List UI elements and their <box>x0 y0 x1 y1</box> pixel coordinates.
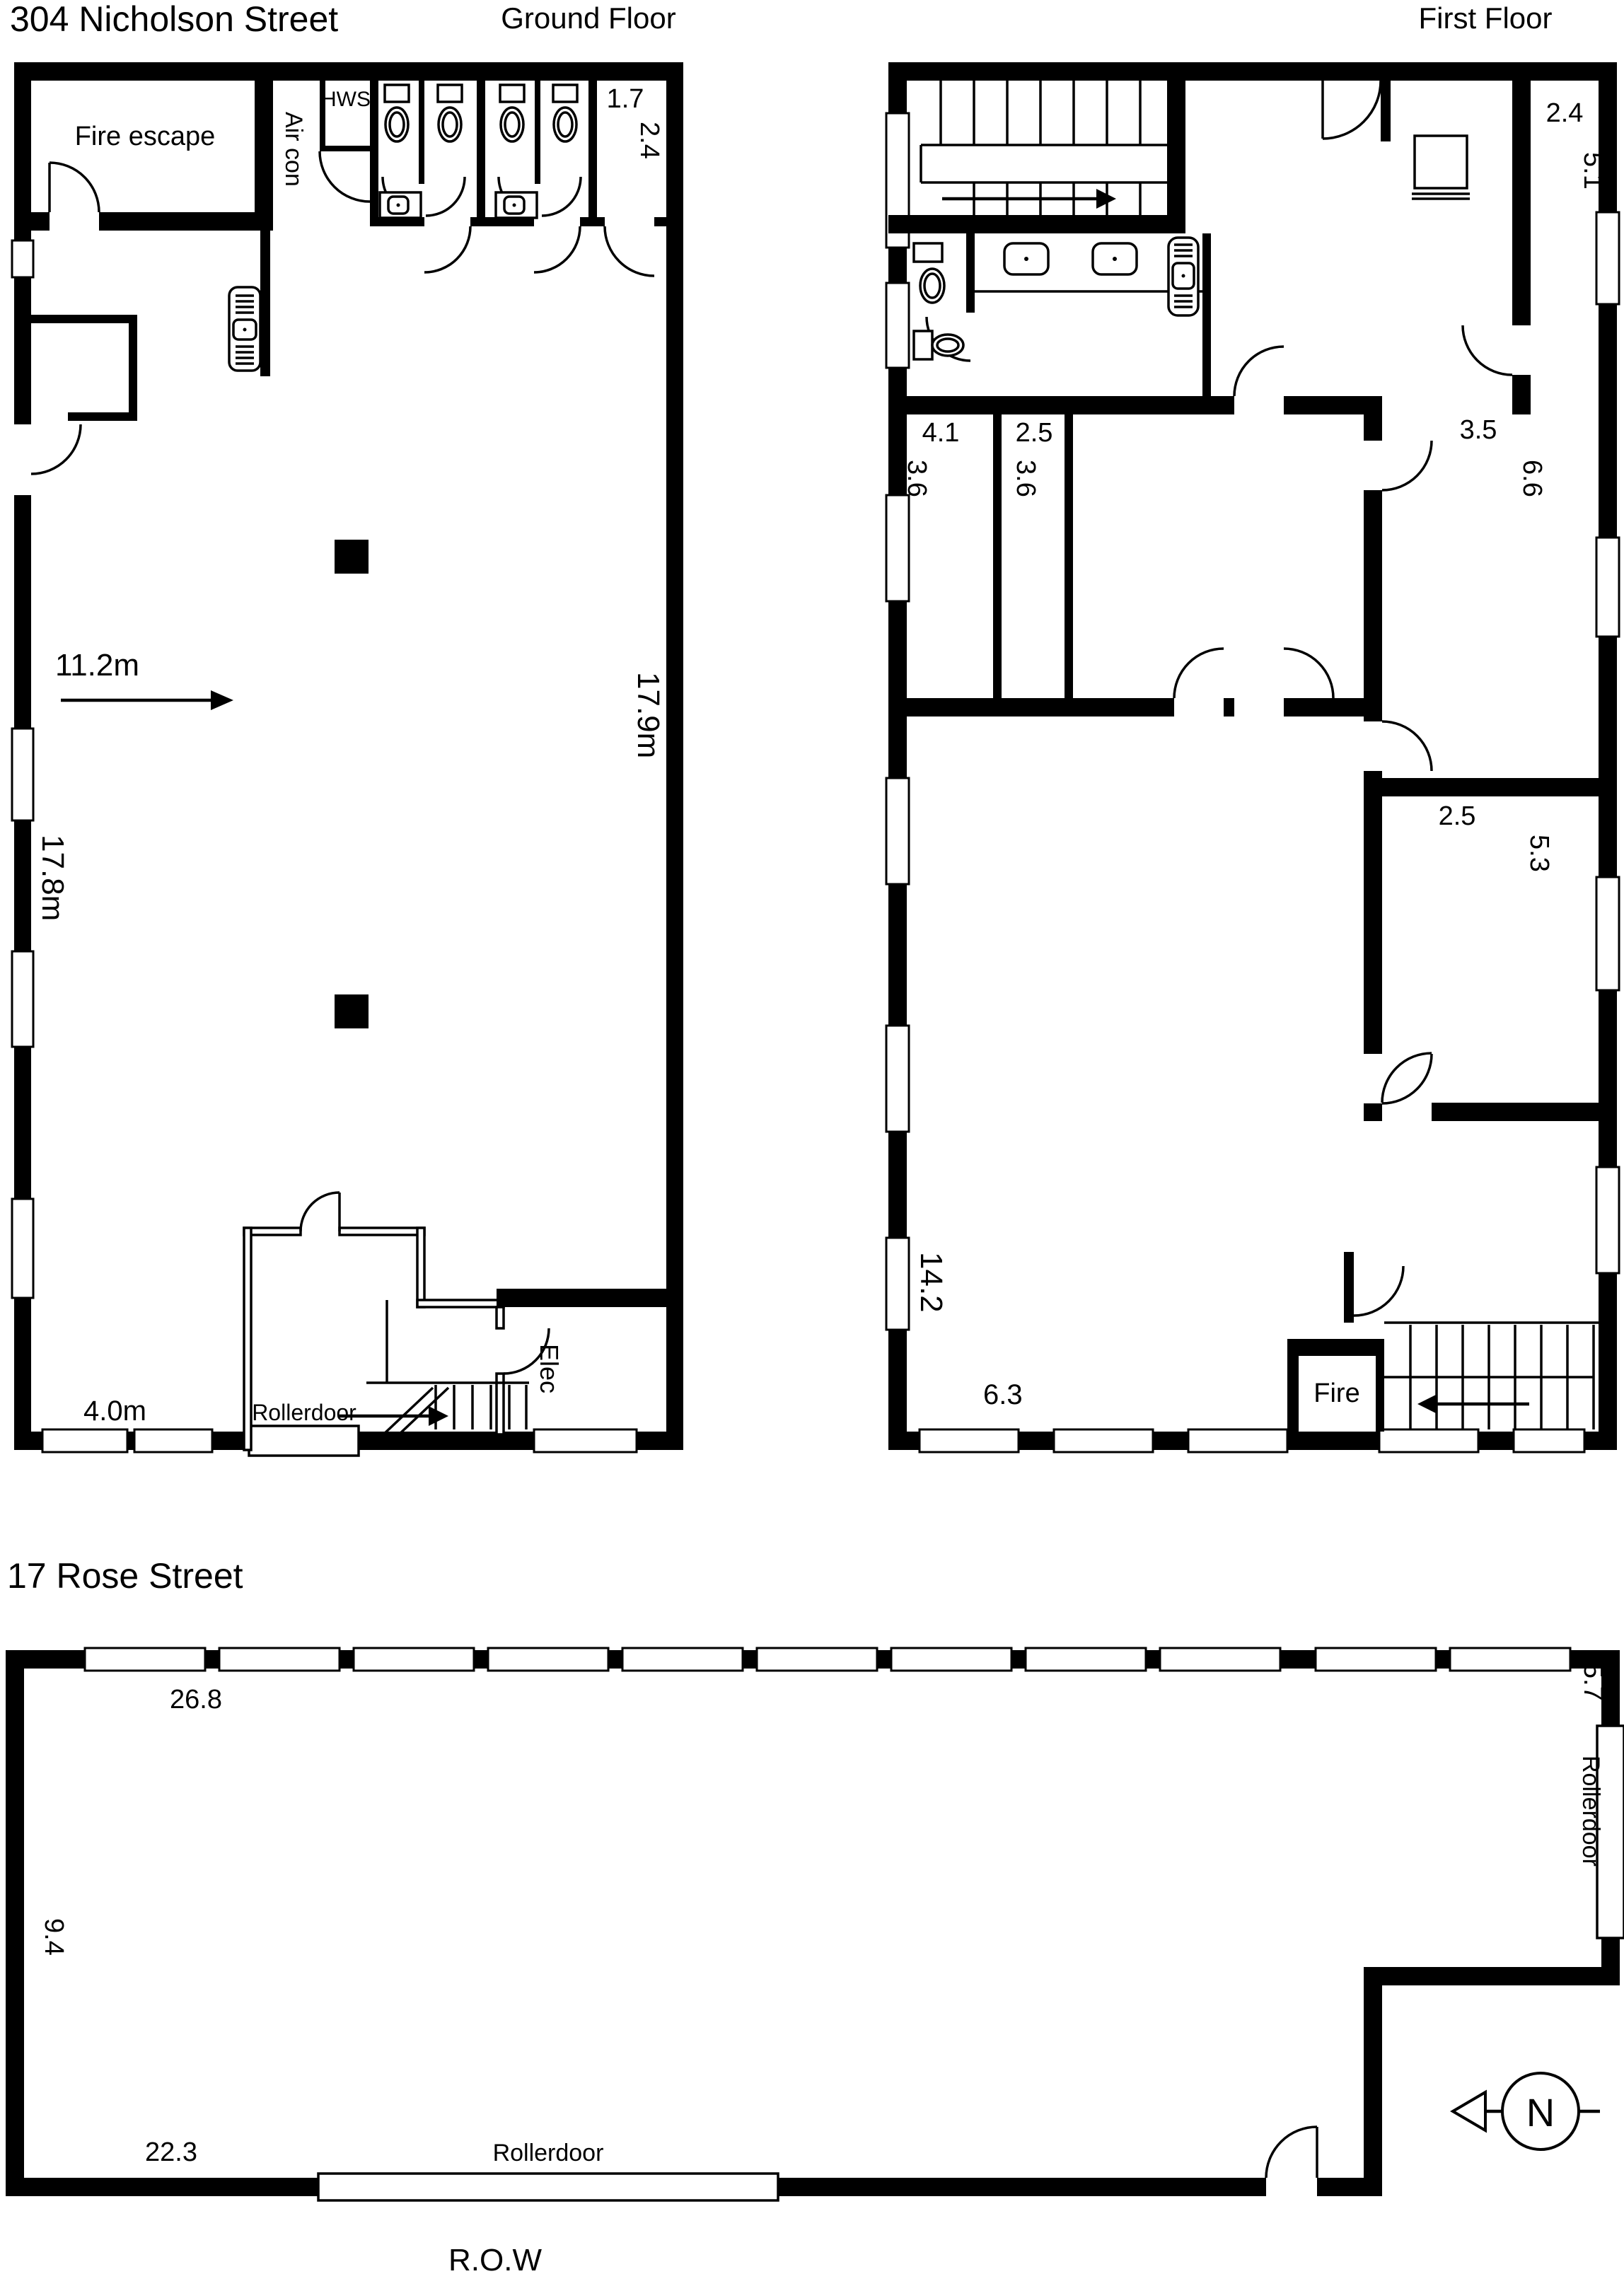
window <box>886 495 909 601</box>
wall-segment <box>500 85 524 102</box>
door-arc <box>1382 441 1432 490</box>
window <box>12 729 33 820</box>
window <box>1054 1429 1153 1452</box>
dim-rooma-depth: 3.6 <box>902 460 932 497</box>
window <box>1026 1648 1146 1671</box>
dim-roomc-depth: 6.6 <box>1517 460 1547 497</box>
door-arc <box>1174 649 1224 698</box>
window <box>219 1648 340 1671</box>
ground-floor-plan: Fire escape Air con HWS <box>12 62 683 1456</box>
fixture-shape <box>513 204 516 207</box>
fixture-shape <box>505 112 519 137</box>
label-rollerdoor-ground: Rollerdoor <box>252 1400 356 1425</box>
door-arc <box>542 177 581 216</box>
fixture-shape <box>1113 257 1117 261</box>
wall-segment <box>888 698 1174 716</box>
toilet-icon <box>385 85 409 141</box>
dim-right-17-9: 17.9m <box>631 672 666 758</box>
wall-segment <box>993 414 1002 698</box>
window <box>534 1429 637 1452</box>
dim-roomtr-width: 2.4 <box>1546 98 1584 128</box>
first-floor-plan: 2.4 5.1 4 <box>886 62 1619 1452</box>
room-label-air-con: Air con <box>280 112 307 187</box>
title-nicholson: 304 Nicholson Street <box>10 0 338 39</box>
wall-segment <box>417 1228 424 1307</box>
plan-element <box>1417 1394 1437 1414</box>
north-arrow-head <box>1453 2092 1485 2130</box>
window <box>886 1026 909 1132</box>
dim-room17-depth: 2.4 <box>634 122 664 159</box>
door-arc <box>31 424 81 474</box>
door-arc <box>534 226 580 272</box>
wall-segment <box>1364 1103 1382 1121</box>
wall-segment <box>497 1289 666 1307</box>
wall-segment <box>320 146 370 151</box>
wall-segment <box>580 217 597 226</box>
north-compass-icon: N <box>1453 2073 1600 2149</box>
door-arc <box>1463 325 1512 375</box>
wall-segment <box>255 81 273 231</box>
wall-segment <box>553 85 577 102</box>
wall-segment <box>385 85 409 102</box>
stairs-icon <box>1384 1323 1599 1429</box>
toilet-icon <box>914 243 944 303</box>
wall-segment <box>1224 698 1234 716</box>
wall-segment <box>497 1307 504 1328</box>
dim-rooma-width: 4.1 <box>922 418 960 448</box>
wall-segment <box>1065 414 1073 698</box>
window <box>42 1429 127 1452</box>
window <box>1188 1429 1287 1452</box>
dim-roomb-depth: 3.6 <box>1011 460 1040 497</box>
wall-segment <box>966 233 975 313</box>
fixture-shape <box>390 112 404 137</box>
door-arc <box>1323 81 1381 139</box>
bathroom <box>914 233 1211 396</box>
wall-segment <box>666 62 683 1450</box>
window <box>1316 1648 1436 1671</box>
fixture-shape <box>924 274 940 298</box>
window <box>12 1199 33 1298</box>
label-north: N <box>1526 2090 1555 2135</box>
room-label-elec: Elec <box>535 1344 564 1393</box>
wall-segment <box>1382 778 1617 796</box>
wall-segment <box>1287 1339 1376 1356</box>
wall-segment <box>914 331 932 359</box>
wall-segment <box>438 85 462 102</box>
wall-segment <box>419 81 424 184</box>
title-rose: 17 Rose Street <box>7 1556 243 1596</box>
floorplan-page: 304 Nicholson Street Ground Floor First … <box>0 0 1624 2286</box>
wall-segment <box>14 62 683 81</box>
dim-bottom-22-3: 22.3 <box>145 2137 197 2167</box>
wall-segment <box>535 81 540 184</box>
alcove-wall <box>68 412 137 421</box>
fixture-shape <box>1024 257 1028 261</box>
wall-segment <box>417 1300 504 1307</box>
dim-room17-width: 1.7 <box>607 84 644 114</box>
wall-segment <box>654 217 666 226</box>
dim-top-26-8: 26.8 <box>170 1685 222 1714</box>
fixture-shape <box>443 112 457 137</box>
wall-segment <box>1202 233 1211 396</box>
wall-segment <box>244 1228 251 1450</box>
dim-roomb-width: 2.5 <box>1016 418 1053 448</box>
dim-office-4-0: 4.0m <box>83 1396 146 1427</box>
dim-depth-14-2: 14.2 <box>914 1252 949 1313</box>
wall-segment <box>370 81 378 226</box>
column <box>335 540 369 574</box>
window <box>488 1648 608 1671</box>
toilet-icon <box>553 85 577 141</box>
wall-segment <box>1512 81 1531 325</box>
wall-segment <box>888 396 1234 414</box>
window <box>920 1429 1019 1452</box>
wall-segment <box>1364 1967 1382 2196</box>
window <box>622 1648 743 1671</box>
fixture-shape <box>243 328 247 332</box>
fixture-shape <box>397 204 400 207</box>
window <box>757 1648 877 1671</box>
window <box>354 1648 474 1671</box>
window <box>12 951 33 1047</box>
wall-segment <box>597 217 605 226</box>
door-arc <box>1266 2127 1317 2178</box>
window <box>134 1429 212 1452</box>
wall-segment <box>1415 136 1467 188</box>
wall-segment <box>1376 1339 1384 1432</box>
room-label-fire-escape: Fire escape <box>75 122 216 151</box>
fixture-shape <box>1182 274 1185 278</box>
dim-right-5-7: 5.7 <box>1578 1664 1608 1701</box>
rose-street-plan: 26.8 5.7 Rollerdoor 9.4 22.3 Rollerdoor … <box>6 1648 1624 2278</box>
door-arc <box>424 226 470 272</box>
wall-segment <box>1364 1967 1620 1985</box>
door-arc <box>320 151 370 202</box>
wall-segment <box>588 81 597 226</box>
room-label-fire: Fire <box>1313 1379 1359 1408</box>
dim-roomd-depth: 5.3 <box>1524 835 1554 872</box>
window <box>1596 877 1619 990</box>
window <box>886 778 909 884</box>
window <box>1596 1167 1619 1273</box>
sink-icon <box>1093 243 1137 274</box>
window <box>1379 1429 1478 1452</box>
label-row: R.O.W <box>448 2243 542 2278</box>
wall-segment <box>888 215 1185 233</box>
wall-segment <box>1364 396 1382 441</box>
wall-segment <box>1344 1252 1354 1323</box>
wall-segment <box>14 212 50 231</box>
wall-segment <box>914 243 942 262</box>
dim-arrow-head <box>211 690 233 710</box>
window <box>1596 212 1619 304</box>
appliance-icon <box>1412 136 1470 199</box>
plan-element <box>429 1406 448 1426</box>
kitchen-sink-icon <box>229 287 260 371</box>
heading-ground-floor: Ground Floor <box>501 1 675 35</box>
window <box>1450 1648 1570 1671</box>
door-arc <box>301 1193 340 1231</box>
window <box>85 1648 205 1671</box>
toilet-icon <box>438 85 462 141</box>
dim-roomtr-depth: 5.1 <box>1578 152 1608 190</box>
wall-segment <box>888 62 1617 81</box>
window <box>891 1648 1011 1671</box>
window <box>12 240 33 277</box>
door-arc <box>50 163 99 212</box>
trough-sink-icon <box>1168 238 1198 315</box>
floorplan-drawing: 304 Nicholson Street Ground Floor First … <box>0 0 1624 2286</box>
dim-bottom-6-3: 6.3 <box>983 1379 1023 1410</box>
wall-segment <box>1364 490 1382 721</box>
wall-segment <box>1432 1103 1617 1121</box>
door-arc <box>426 177 465 216</box>
sink-icon <box>380 192 421 218</box>
wall-segment <box>1512 375 1531 414</box>
window <box>1514 1429 1584 1452</box>
wall-segment <box>1287 1339 1299 1432</box>
door-arc <box>1354 1266 1403 1316</box>
dim-left-17-8: 17.8m <box>35 835 70 921</box>
wall-segment <box>1167 81 1185 233</box>
window <box>1160 1648 1280 1671</box>
rollerdoor-opening <box>318 2174 778 2200</box>
door-arc <box>605 226 654 276</box>
stairs-icon <box>888 81 1185 233</box>
door-arc <box>1382 721 1432 771</box>
toilet-icon <box>500 85 524 141</box>
label-rollerdoor-bottom: Rollerdoor <box>493 2140 604 2166</box>
door-arc <box>1284 649 1333 698</box>
dim-left-9-4: 9.4 <box>39 1918 69 1956</box>
column <box>335 994 369 1028</box>
label-rollerdoor-right: Rollerdoor <box>1577 1756 1604 1867</box>
fixture-shape <box>937 339 958 352</box>
wall-segment <box>477 81 485 226</box>
window <box>886 283 909 368</box>
window <box>1596 538 1619 637</box>
wall-segment <box>244 1228 301 1235</box>
alcove-wall <box>24 315 137 323</box>
door-arc <box>1234 347 1284 396</box>
dim-width-11-2: 11.2m <box>55 648 139 683</box>
wall-segment <box>340 1228 424 1235</box>
wall-segment <box>1364 771 1382 1054</box>
sink-icon <box>1004 243 1048 274</box>
room-label-hws: HWS <box>321 88 371 111</box>
fixture-shape <box>558 112 572 137</box>
wall-segment <box>6 1650 24 2196</box>
window <box>886 1238 909 1330</box>
alcove-wall <box>129 315 137 421</box>
toilet-icon <box>914 331 963 359</box>
wall-segment <box>1284 698 1372 716</box>
dim-roomd-width: 2.5 <box>1439 801 1476 831</box>
wall-segment <box>99 212 273 231</box>
rollerdoor-opening <box>249 1426 359 1456</box>
wall-segment <box>260 231 270 376</box>
wall-segment <box>1381 81 1391 141</box>
sink-icon <box>496 192 537 218</box>
heading-first-floor: First Floor <box>1419 1 1553 35</box>
dim-roomc-width: 3.5 <box>1460 415 1497 445</box>
